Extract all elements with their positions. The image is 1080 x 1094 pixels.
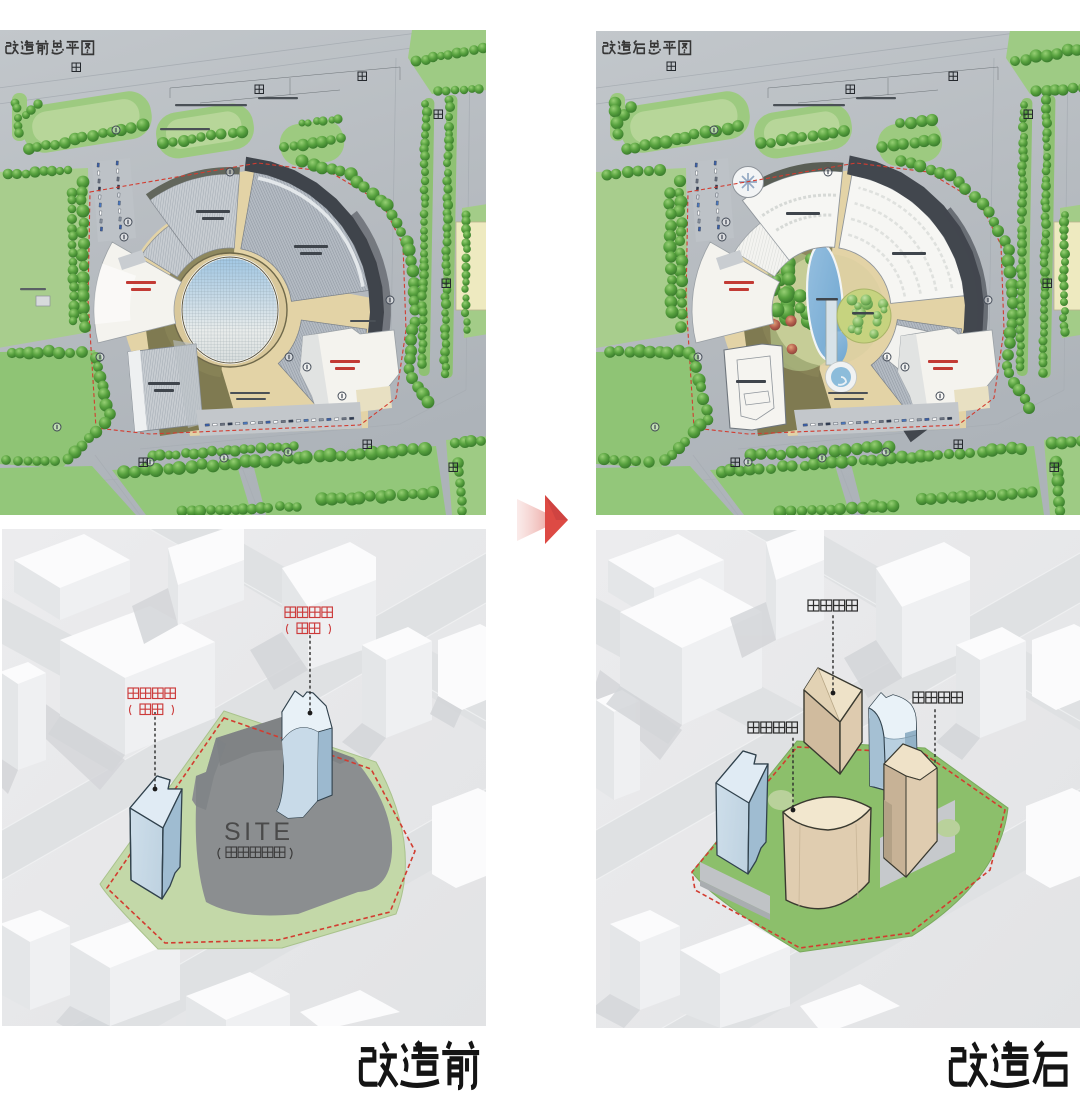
svg-text:SITE: SITE <box>224 818 294 846</box>
